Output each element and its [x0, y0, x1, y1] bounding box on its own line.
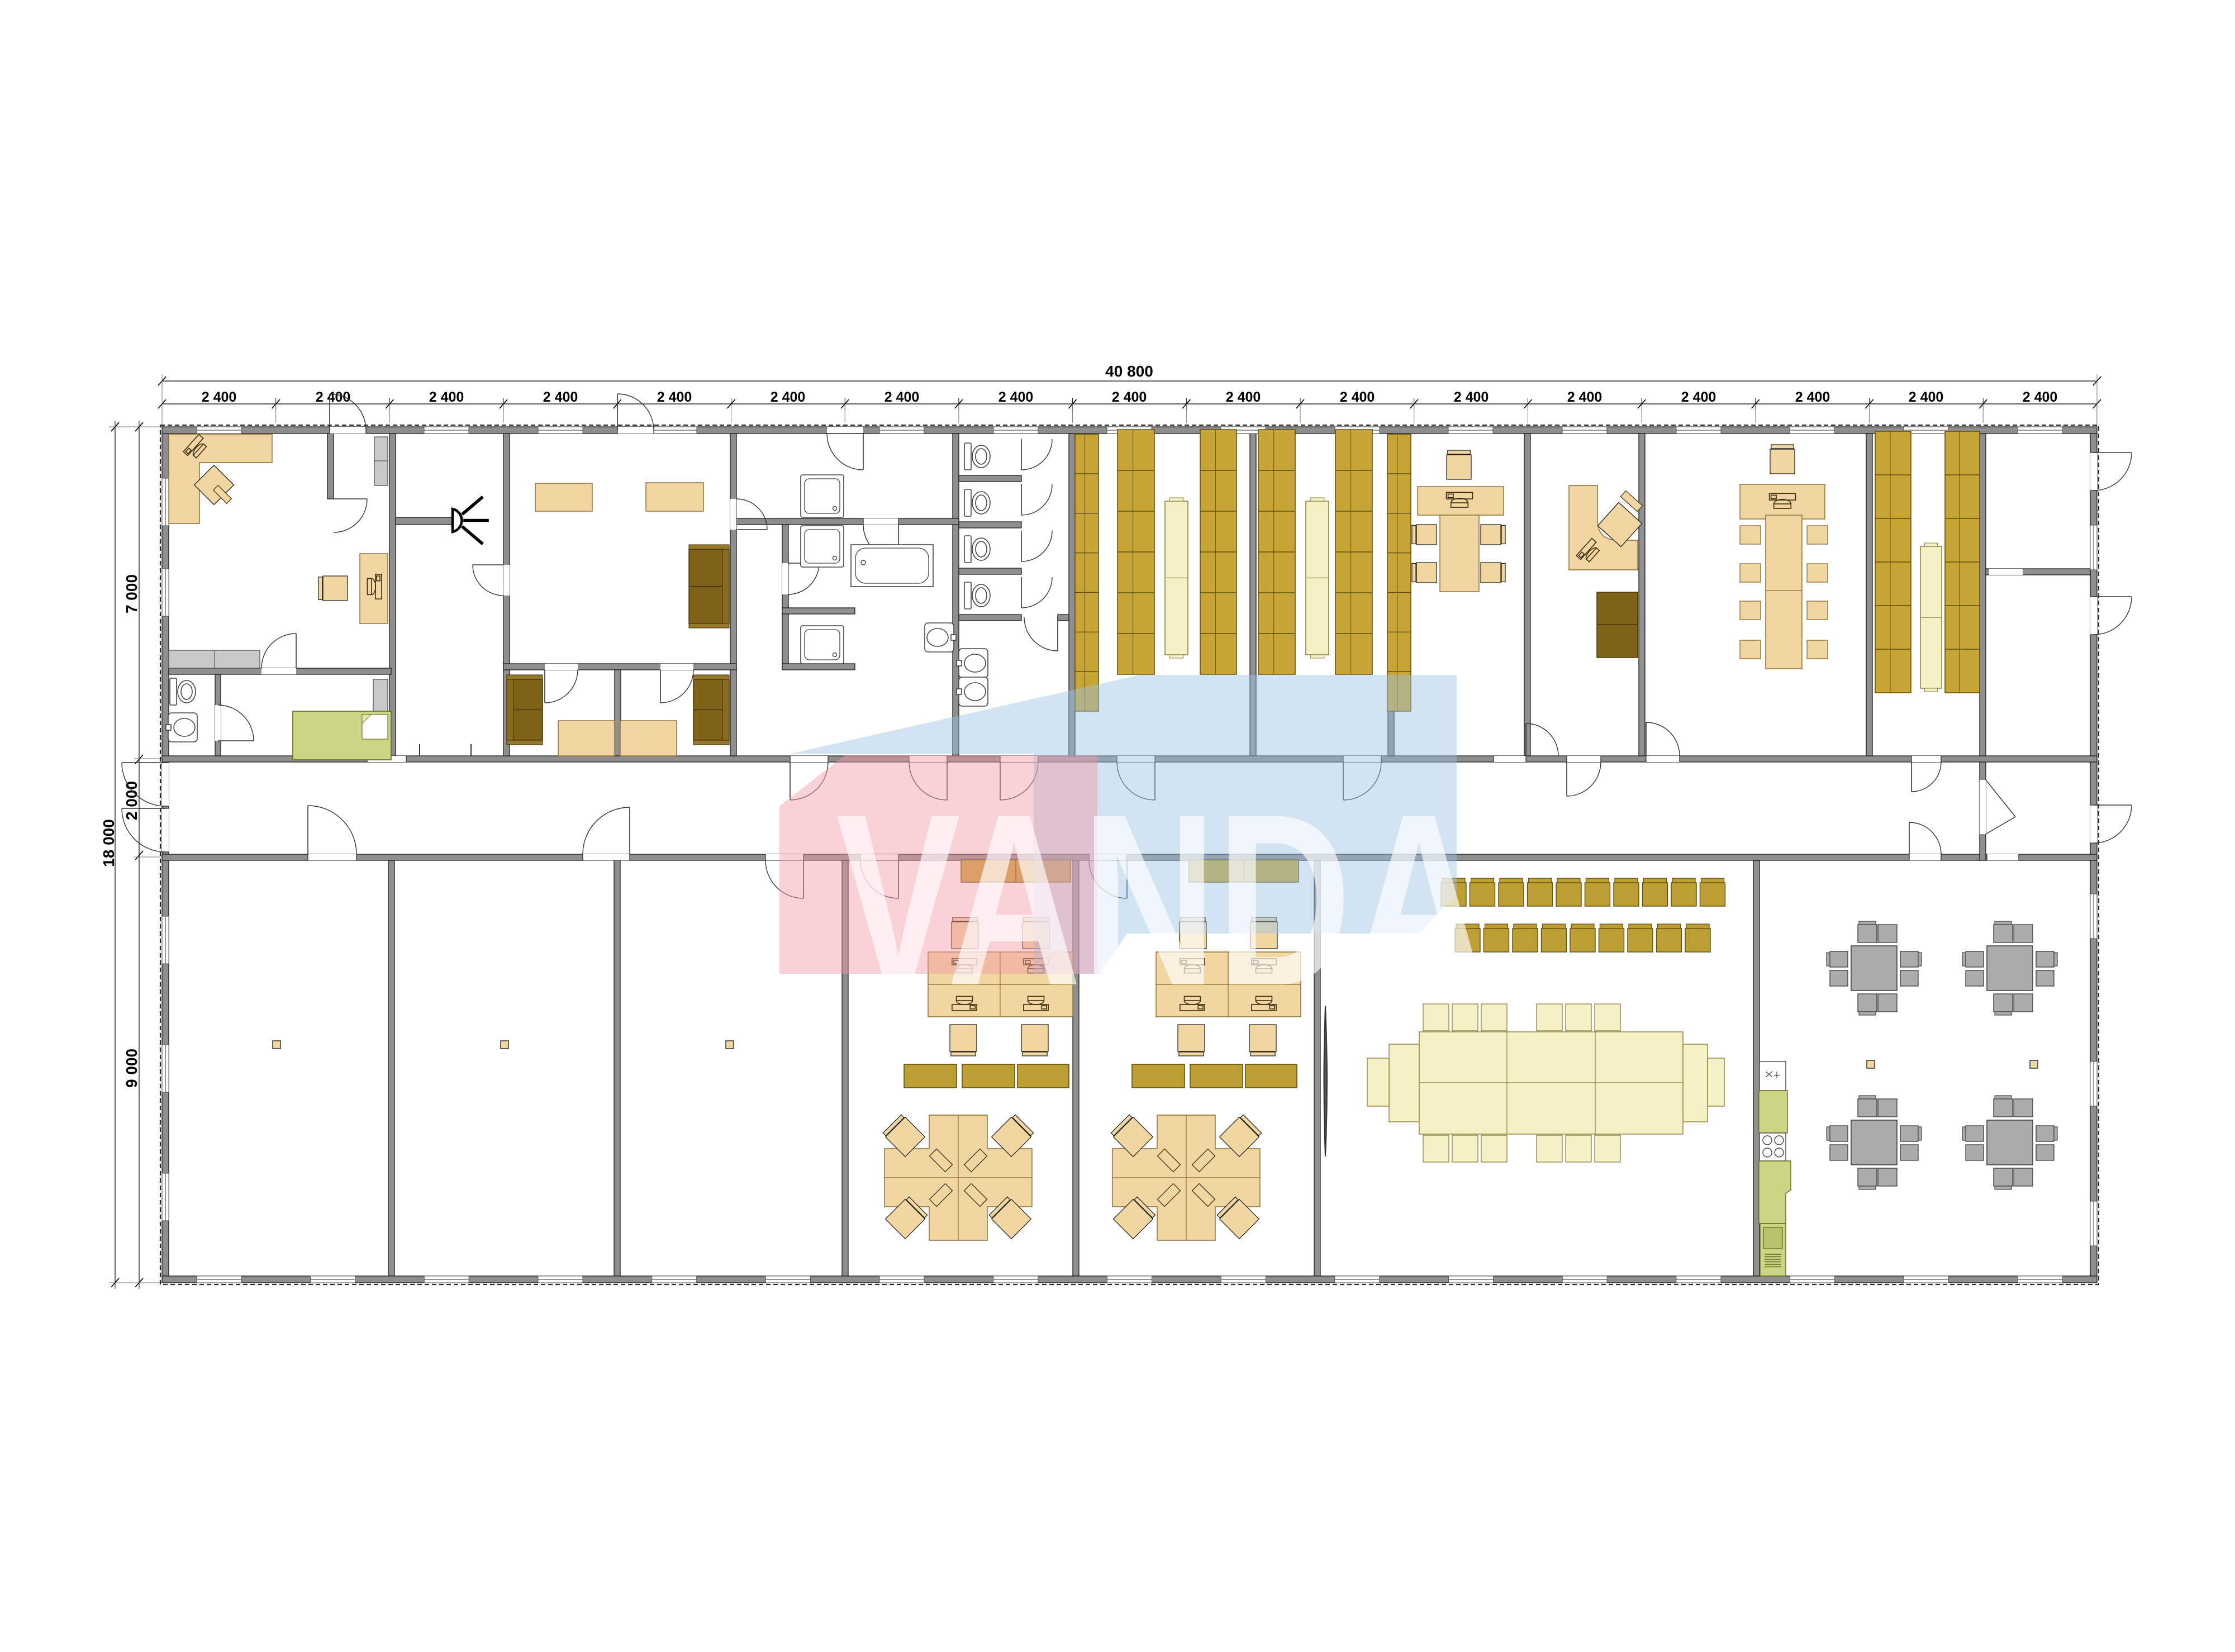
- svg-text:2 400: 2 400: [1340, 389, 1375, 405]
- svg-text:2 400: 2 400: [1226, 389, 1261, 405]
- svg-text:2 400: 2 400: [543, 389, 578, 405]
- svg-text:2 400: 2 400: [1567, 389, 1602, 405]
- svg-text:2 400: 2 400: [1454, 389, 1489, 405]
- svg-text:2 400: 2 400: [1112, 389, 1147, 405]
- svg-text:2 400: 2 400: [429, 389, 464, 405]
- svg-text:2 400: 2 400: [998, 389, 1034, 405]
- svg-text:18 000: 18 000: [100, 819, 117, 867]
- svg-text:2 400: 2 400: [2023, 389, 2058, 405]
- svg-text:2 400: 2 400: [1681, 389, 1716, 405]
- svg-text:2 400: 2 400: [771, 389, 806, 405]
- svg-text:2 400: 2 400: [1795, 389, 1830, 405]
- svg-text:2 400: 2 400: [1909, 389, 1944, 405]
- svg-text:2 400: 2 400: [657, 389, 692, 405]
- svg-text:7 000: 7 000: [123, 574, 140, 613]
- svg-text:VANDA: VANDA: [836, 763, 1486, 1036]
- svg-text:2 400: 2 400: [202, 389, 237, 405]
- svg-text:2 000: 2 000: [123, 781, 140, 820]
- svg-text:40 800: 40 800: [1105, 363, 1153, 380]
- svg-text:9 000: 9 000: [123, 1049, 140, 1088]
- svg-text:2 400: 2 400: [885, 389, 920, 405]
